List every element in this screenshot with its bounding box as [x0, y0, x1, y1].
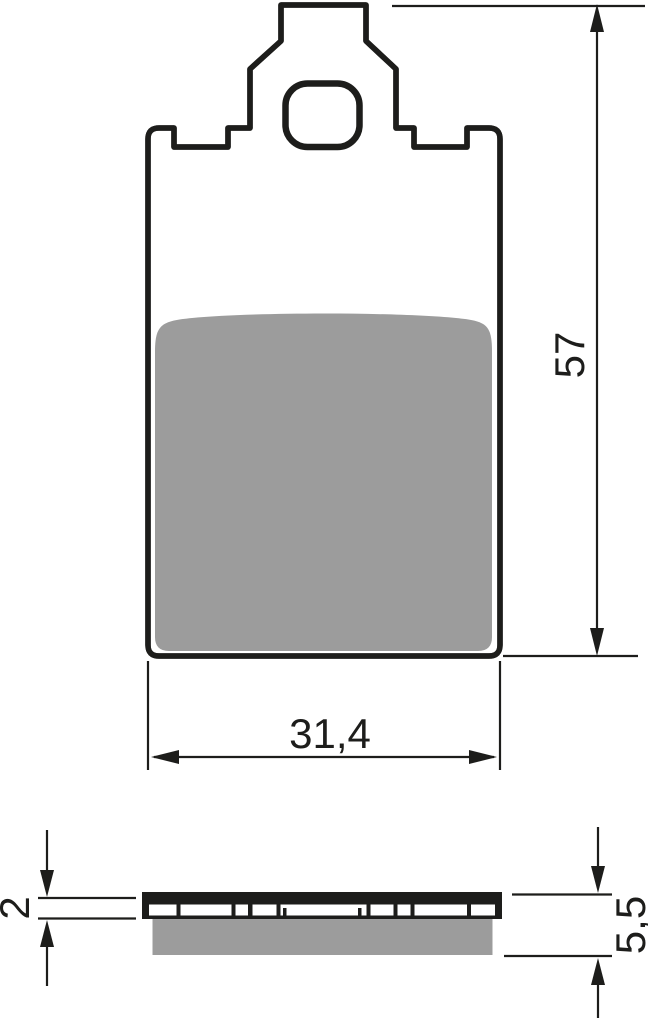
arrowhead-right	[469, 750, 497, 764]
segment	[181, 905, 232, 916]
segment	[253, 905, 277, 916]
segment	[398, 905, 411, 916]
total-thickness-dimension: 5,5	[504, 827, 648, 1018]
backplate-thickness-label: 2	[0, 896, 38, 919]
drawing-canvas: 57 31,4	[0, 0, 648, 1024]
side-view	[142, 892, 502, 955]
width-dimension-label: 31,4	[289, 710, 371, 757]
arrowhead-up	[40, 920, 54, 947]
arrowhead-left	[151, 750, 179, 764]
brake-pad-technical-drawing: 57 31,4	[0, 0, 648, 1024]
arrowhead-down	[40, 870, 54, 897]
arrowhead-down	[590, 628, 604, 656]
segment	[281, 905, 367, 916]
mounting-hole	[286, 84, 360, 148]
segment	[149, 905, 177, 916]
segment	[415, 905, 468, 916]
arrowhead-down	[591, 866, 605, 893]
arrowhead-up	[590, 4, 604, 32]
segment	[236, 905, 249, 916]
total-thickness-label: 5,5	[607, 896, 648, 954]
front-view	[148, 5, 500, 656]
segment	[471, 905, 495, 916]
segment	[371, 905, 394, 916]
friction-pad-front	[155, 314, 492, 652]
segment-tick	[283, 908, 287, 916]
arrowhead-up	[591, 958, 605, 985]
friction-pad-side	[153, 919, 493, 955]
segment-tick	[358, 908, 362, 916]
height-dimension-label: 57	[546, 332, 593, 379]
width-dimension: 31,4	[148, 661, 500, 770]
backplate-thickness-dimension: 2	[0, 830, 136, 986]
backplate-segments	[149, 905, 495, 916]
